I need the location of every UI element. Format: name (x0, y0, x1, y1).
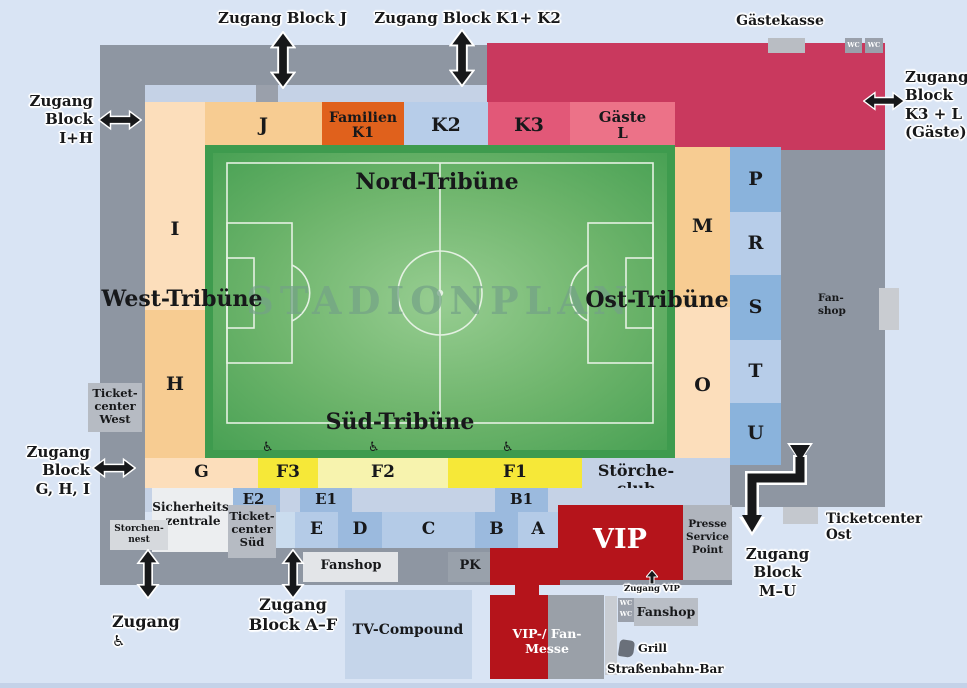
bottom-edge (0, 683, 967, 688)
block-K2[interactable]: K2 (404, 102, 488, 150)
zugang-block-af-arrow-icon (280, 549, 306, 599)
nord-tribuene-label: Nord-Tribüne (337, 169, 537, 196)
block-F3[interactable]: F3 (258, 458, 318, 488)
sued-tribuene-label: Süd-Tribüne (300, 409, 500, 436)
zugang-block-ih-label: Zugang Block I+H (23, 92, 93, 147)
block-T[interactable]: T (730, 340, 781, 403)
zugang-block-j-arrow-icon (270, 31, 296, 89)
ticketcenter-ost-label: Ticketcenter Ost (826, 511, 936, 543)
fanshop-southeast-label: Fanshop (634, 604, 698, 619)
zugang-block-af-label: Zugang Block A–F (233, 595, 353, 634)
fanshop-south-label: Fanshop (306, 558, 396, 574)
grill-label: Grill (638, 641, 667, 655)
grill-icon (618, 639, 635, 658)
wc-north-label: WC (845, 42, 862, 50)
vip-fan-messe-label: VIP-/ Fan- Messe (490, 626, 604, 656)
block-O[interactable]: O (675, 307, 730, 465)
block-E[interactable]: E (295, 512, 338, 548)
vip-entrance-arrow-icon (646, 570, 658, 584)
block-B1[interactable]: B1 (495, 488, 548, 512)
fanshop-east-box[interactable] (879, 288, 899, 330)
ticketcenter-west-label: Ticket- center West (88, 387, 142, 427)
gaestekasse-label: Gästekasse (725, 13, 835, 30)
zugang-block-k1k2-arrow-icon (449, 29, 475, 87)
zugang-vip-label: Zugang VIP (624, 584, 680, 594)
wheelchair-icon: ♿ (502, 440, 514, 456)
wheelchair-icon: ♿ (262, 440, 274, 456)
pk-label: PK (450, 558, 490, 574)
presse-service-point-label: Presse Service Point (683, 518, 732, 557)
block-F2[interactable]: F2 (318, 458, 448, 488)
block-F1[interactable]: F1 (448, 458, 582, 488)
block-A[interactable]: A (518, 512, 558, 548)
block-M[interactable]: M (675, 147, 730, 307)
vip-label: VIP (560, 524, 680, 557)
zugang-block-k3l-arrow-icon (863, 89, 905, 113)
west-tribuene-label: West-Tribüne (82, 286, 282, 313)
ticketcenter-sued-label: Ticket- center Süd (226, 510, 278, 550)
storchennest-label: Storchen- nest (108, 524, 170, 546)
gaestekasse-box[interactable] (768, 38, 805, 53)
block-C[interactable]: C (382, 512, 475, 548)
zugang-barrierefrei-text: Zugang (112, 612, 180, 631)
block-R[interactable]: R (730, 212, 781, 275)
north-walkway (145, 85, 487, 102)
fanshop-east-label: Fan- shop (818, 292, 860, 317)
wc-south-label: WC (618, 599, 634, 609)
zugang-block-k1k2-label: Zugang Block K1+ K2 (370, 9, 565, 27)
zugang-block-ghi-label: Zugang Block G, H, I (20, 443, 90, 498)
block-L-gaeste[interactable]: Gäste L (570, 102, 675, 150)
block-E1[interactable]: E1 (300, 488, 352, 512)
zugang-block-ghi-arrow-icon (92, 455, 136, 481)
block-D[interactable]: D (338, 512, 382, 548)
tv-compound-label: TV-Compound (348, 622, 468, 639)
block-J[interactable]: J (205, 102, 322, 150)
wc-north-label2: WC (865, 42, 883, 50)
block-B[interactable]: B (475, 512, 518, 548)
zugang-block-j-label: Zugang Block J (195, 9, 370, 27)
block-K3[interactable]: K3 (488, 102, 570, 150)
wheelchair-icon: ♿ (112, 632, 125, 650)
zugang-barrierefrei-label: Zugang ♿ (112, 592, 180, 651)
stadium-plan: J Familien K1 K2 K3 Gäste L I H M O P R … (0, 0, 967, 688)
block-P[interactable]: P (730, 147, 781, 212)
ost-tribuene-label: Ost-Tribüne (557, 287, 757, 314)
wc-south-label2: WC (618, 610, 634, 620)
wheelchair-icon: ♿ (368, 440, 380, 456)
block-K1-familien[interactable]: Familien K1 (322, 102, 404, 150)
zugang-block-k3l-label: Zugang Block K3 + L (Gäste) (905, 68, 965, 141)
block-G[interactable]: G (145, 458, 258, 488)
block-north-corner[interactable] (145, 102, 205, 150)
zugang-block-mu-label: Zugang Block M–U (740, 545, 815, 600)
zugang-block-mu-arrow-icon (735, 443, 815, 538)
zugang-block-ih-arrow-icon (98, 107, 142, 133)
block-H[interactable]: H (145, 310, 205, 460)
strassenbahn-bar-label: Straßenbahn-Bar (607, 662, 724, 677)
